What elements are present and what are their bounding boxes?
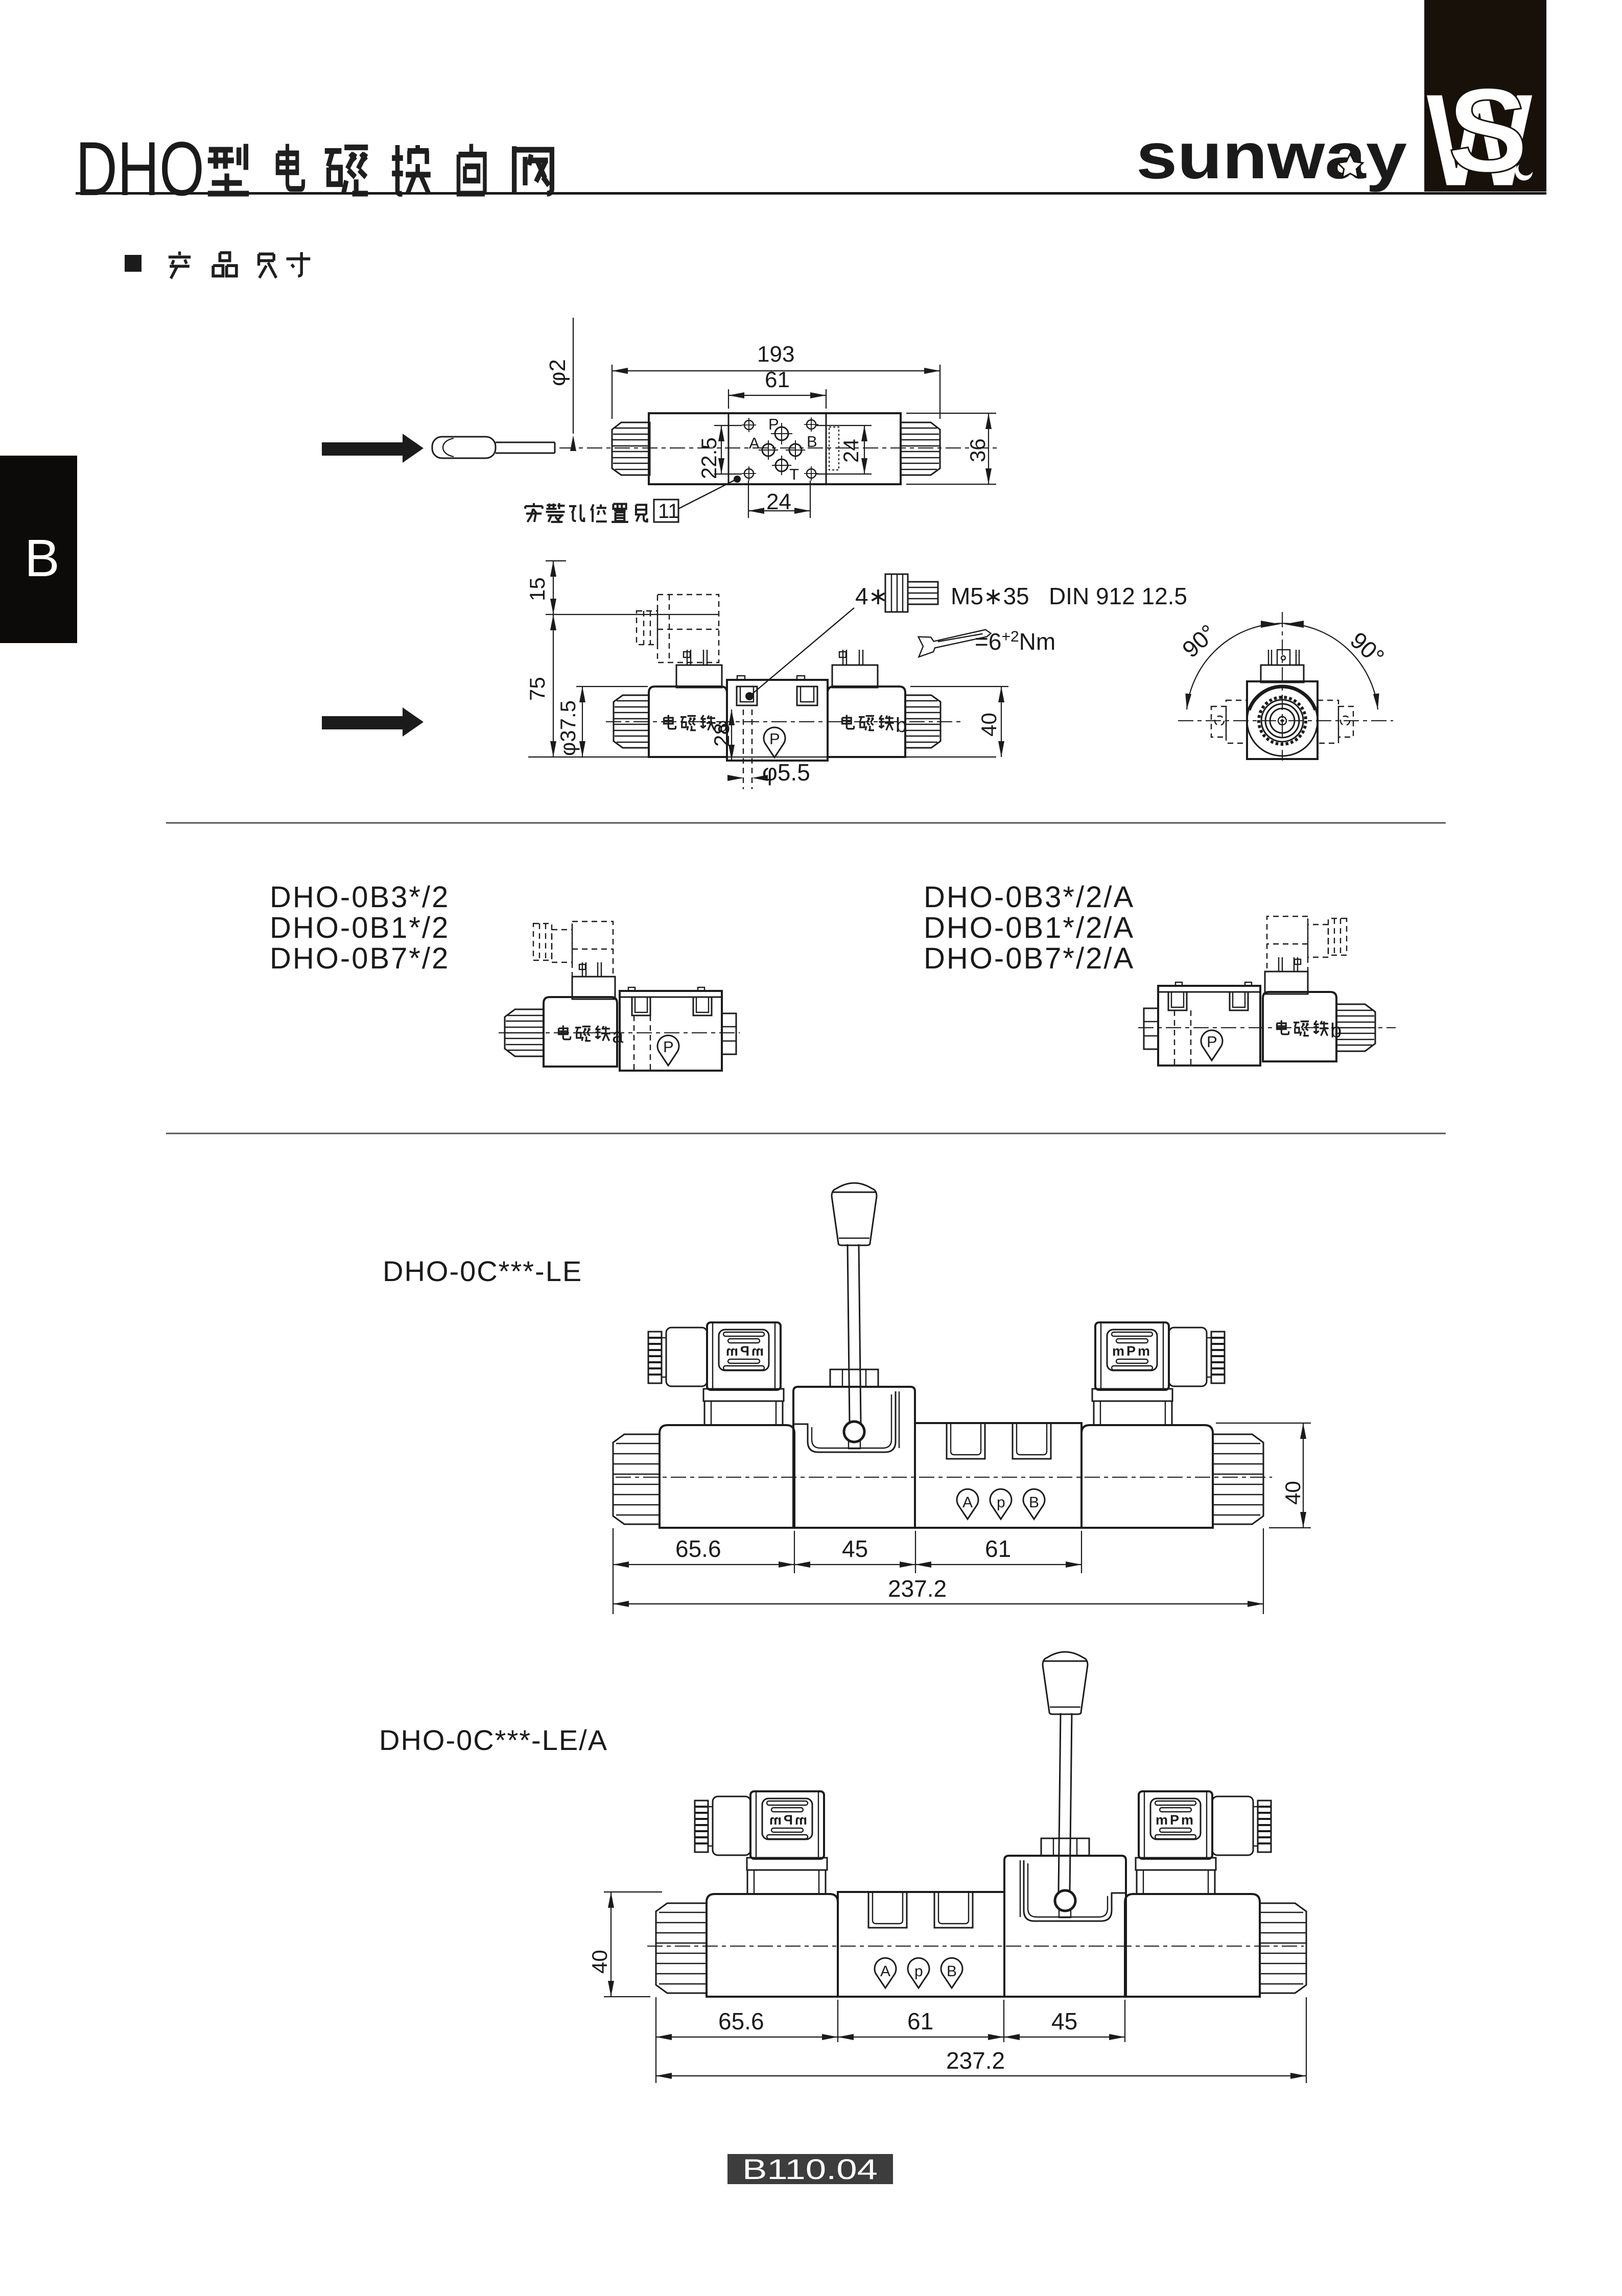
svg-text:mPm: mPm xyxy=(724,1343,764,1359)
svg-text:A: A xyxy=(749,434,760,452)
svg-text:45: 45 xyxy=(1051,2008,1077,2034)
svg-text:S: S xyxy=(1448,63,1528,197)
svg-text:a: a xyxy=(612,1025,624,1047)
svg-text:65.6: 65.6 xyxy=(675,1535,721,1562)
svg-text:237.2: 237.2 xyxy=(946,2047,1005,2074)
svg-text:15: 15 xyxy=(525,577,549,601)
svg-text:40: 40 xyxy=(1281,1481,1305,1505)
svg-text:65.6: 65.6 xyxy=(718,2008,764,2034)
svg-text:φ5.5: φ5.5 xyxy=(762,759,810,786)
svg-text:75: 75 xyxy=(525,677,549,701)
svg-text:61: 61 xyxy=(907,2008,933,2034)
svg-text:DHO-0C***-LE/A: DHO-0C***-LE/A xyxy=(379,1724,608,1756)
svg-text:A: A xyxy=(880,1963,890,1980)
svg-text:40: 40 xyxy=(977,713,1001,737)
svg-text:DHO-0C***-LE: DHO-0C***-LE xyxy=(383,1255,582,1287)
svg-text:P: P xyxy=(769,730,780,748)
svg-text:193: 193 xyxy=(757,342,794,367)
svg-text:A: A xyxy=(962,1494,973,1511)
svg-text:45: 45 xyxy=(842,1535,868,1562)
svg-text:b: b xyxy=(1330,1020,1342,1042)
svg-text:DHO-0B3*/2: DHO-0B3*/2 xyxy=(270,881,450,914)
svg-text:P: P xyxy=(663,1038,674,1056)
svg-text:M5∗35 DIN 912 12.5: M5∗35 DIN 912 12.5 xyxy=(951,583,1187,609)
svg-text:24: 24 xyxy=(839,439,863,463)
svg-text:61: 61 xyxy=(985,1535,1011,1562)
svg-text:B: B xyxy=(807,433,817,451)
svg-text:DHO-0B1*/2: DHO-0B1*/2 xyxy=(270,911,450,944)
svg-text:φ37.5: φ37.5 xyxy=(556,700,580,756)
svg-text:DHO-0B7*/2: DHO-0B7*/2 xyxy=(270,942,450,975)
svg-text:DHO-0B7*/2/A: DHO-0B7*/2/A xyxy=(924,942,1135,975)
svg-text:p: p xyxy=(914,1963,923,1980)
svg-text:P: P xyxy=(768,415,779,433)
svg-text:φ2: φ2 xyxy=(545,359,570,386)
svg-text:mPm: mPm xyxy=(767,1812,807,1828)
svg-text:40: 40 xyxy=(587,1950,612,1974)
svg-text:DHO-0B1*/2/A: DHO-0B1*/2/A xyxy=(924,911,1135,944)
svg-text:11: 11 xyxy=(658,500,679,523)
svg-text:28: 28 xyxy=(710,723,734,747)
svg-text:B: B xyxy=(947,1963,957,1980)
svg-text:4∗: 4∗ xyxy=(855,583,888,609)
svg-text:b: b xyxy=(896,714,907,737)
svg-text:24: 24 xyxy=(766,489,791,514)
svg-text:B: B xyxy=(25,529,60,587)
svg-text:mPm: mPm xyxy=(1156,1812,1195,1828)
svg-text:T: T xyxy=(789,465,799,483)
svg-text:sunway: sunway xyxy=(1136,120,1407,193)
svg-text:B110.04: B110.04 xyxy=(742,2153,878,2185)
svg-text:DHO-0B3*/2/A: DHO-0B3*/2/A xyxy=(924,881,1135,914)
svg-text:36: 36 xyxy=(966,438,990,462)
svg-text:B: B xyxy=(1029,1494,1039,1511)
svg-text:DHO: DHO xyxy=(76,126,204,211)
svg-text:61: 61 xyxy=(765,367,790,392)
svg-text:237.2: 237.2 xyxy=(888,1575,947,1602)
svg-text:mPm: mPm xyxy=(1112,1343,1152,1359)
svg-text:P: P xyxy=(1207,1033,1217,1051)
svg-text:p: p xyxy=(997,1494,1005,1511)
svg-text:22.5: 22.5 xyxy=(697,437,721,479)
